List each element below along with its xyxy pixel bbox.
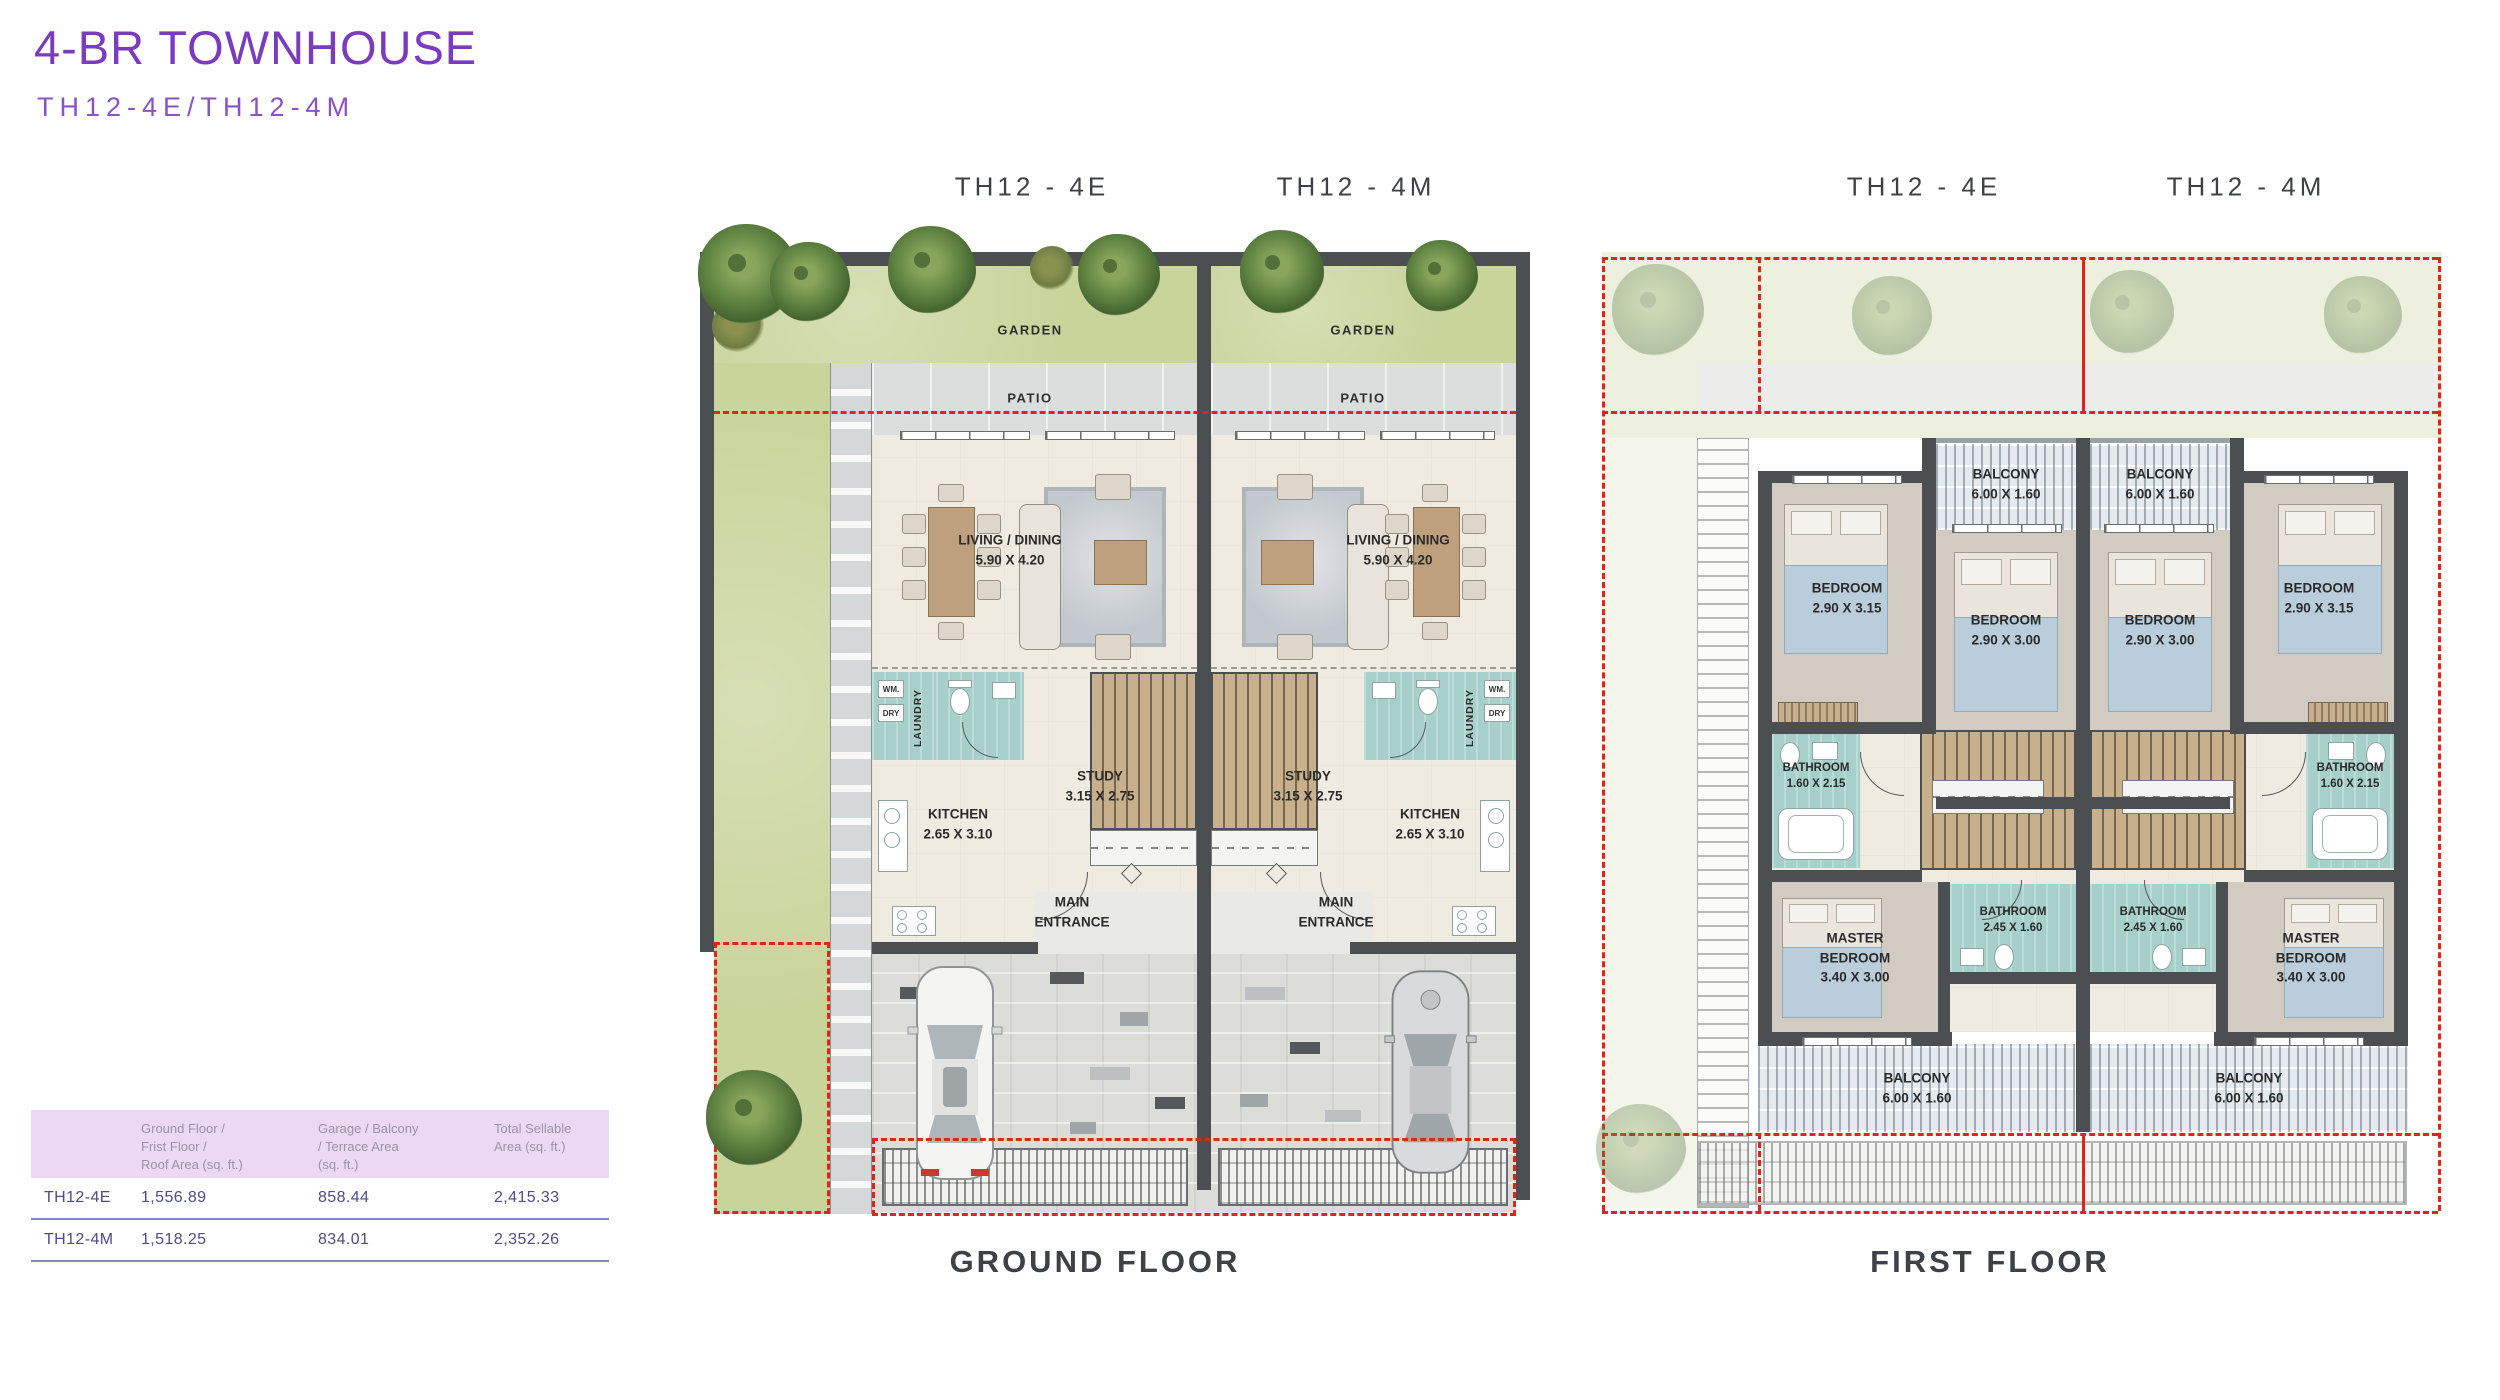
burner: [897, 923, 907, 933]
sink: [2328, 742, 2354, 760]
red-boundary-box-bottom: [872, 1138, 1516, 1216]
armchair: [1095, 634, 1131, 660]
dining-chair: [1422, 484, 1448, 502]
armchair: [1277, 634, 1313, 660]
page-subtitle: TH12-4E/TH12-4M: [37, 92, 355, 123]
red-line: [1758, 257, 1761, 411]
bush: [1030, 246, 1074, 290]
ghost-tree: [2324, 276, 2402, 354]
ghost-tree: [1612, 264, 1704, 356]
balcony-bottom-label-right: BALCONY 6.00 X 1.60: [2214, 1068, 2283, 1107]
toilet-tank: [948, 680, 972, 688]
ground-unit-label-4e: TH12 - 4E: [955, 172, 1110, 203]
paver-tile: [1120, 1012, 1148, 1026]
patio-label-left: PATIO: [1007, 391, 1052, 406]
dining-chair: [1385, 580, 1409, 600]
first-unit-label-4e: TH12 - 4E: [1847, 172, 2002, 203]
tree: [888, 226, 976, 314]
toilet: [1418, 688, 1438, 715]
wall-right: [2394, 471, 2408, 1046]
kitchen-sink: [884, 832, 900, 848]
coffee-table: [1261, 540, 1314, 585]
sink: [992, 682, 1016, 699]
sofa: [1347, 504, 1389, 650]
tree: [1240, 230, 1324, 314]
master-label-left: MASTER BEDROOM 3.40 X 3.00: [1807, 929, 1903, 988]
wall-innerbed-right: [2090, 797, 2230, 809]
red-line: [1602, 1211, 2438, 1214]
sink: [1812, 742, 1838, 760]
wall-innerbath-left: [1950, 972, 2076, 984]
total-area-value: 2,415.33: [490, 1189, 609, 1207]
wall-master-left: [1938, 882, 1950, 1032]
red-line: [2438, 257, 2441, 1211]
paver-tile: [1245, 987, 1285, 1000]
wall-bed-bath-left: [1772, 722, 1922, 734]
burner: [1477, 923, 1487, 933]
bathtub: [1778, 808, 1854, 860]
side-walkway: [830, 363, 872, 1214]
burner: [1477, 910, 1487, 920]
burner: [917, 923, 927, 933]
wall-right: [1516, 252, 1530, 1200]
washing-machine: WM.: [1484, 680, 1510, 698]
kitchen-sink: [1488, 808, 1504, 824]
dining-chair: [902, 514, 926, 534]
stair-landing-right: [1211, 830, 1318, 866]
dining-chair: [1462, 514, 1486, 534]
window: [2264, 475, 2374, 484]
paver-tile: [1290, 1042, 1320, 1054]
bathtub: [2312, 808, 2388, 860]
paver-tile: [1325, 1110, 1361, 1122]
laundry-label-right: LAUNDRY: [1464, 689, 1476, 747]
red-divider: [2082, 257, 2085, 411]
ghost-terrace: [1697, 1141, 2407, 1205]
floor-area-value: 1,518.25: [137, 1231, 314, 1249]
floor-area-value: 1,556.89: [137, 1189, 314, 1207]
wall-bedroom-right: [2230, 438, 2244, 734]
patio-window: [900, 431, 1030, 440]
wall-innerbed-left: [1936, 797, 2076, 809]
dining-chair: [977, 580, 1001, 600]
kitchen-sink: [884, 808, 900, 824]
balcony-rail: [1936, 438, 2076, 443]
red-line: [1602, 257, 1605, 1211]
ghost-walkway: [1697, 438, 1749, 1208]
area-table: Ground Floor / Frist Floor / Roof Area (…: [31, 1110, 609, 1262]
bathroom-inner-label-right: BATHROOM 2.45 X 1.60: [2120, 904, 2187, 936]
living-label-left: LIVING / DINING 5.90 X 4.20: [958, 530, 1062, 569]
balcony-door: [1952, 524, 2062, 533]
wall-bottom-right-unit: [1350, 942, 1516, 954]
tree: [1078, 234, 1160, 316]
bathroom-outer-label-left: BATHROOM 1.60 X 2.15: [1783, 760, 1850, 792]
garden-label-left: GARDEN: [997, 323, 1062, 338]
sofa: [1019, 504, 1061, 650]
toilet: [1994, 944, 2014, 970]
ghost-tree: [1852, 276, 1932, 356]
total-area-value: 2,352.26: [490, 1231, 609, 1249]
balcony-top-label-right: BALCONY 6.00 X 1.60: [2125, 464, 2194, 503]
bedroom-outer-label-left: BEDROOM 2.90 X 3.15: [1812, 578, 1883, 617]
tree: [770, 242, 850, 322]
master-label-right: MASTER BEDROOM 3.40 X 3.00: [2263, 929, 2359, 988]
kitchen-label-left: KITCHEN 2.65 X 3.10: [923, 804, 992, 843]
wall-left: [1758, 471, 1772, 1046]
unit-name: TH12-4M: [31, 1231, 137, 1249]
dryer: DRY: [878, 704, 904, 722]
wall-bath-master-left: [1772, 870, 1922, 882]
unit-name: TH12-4E: [31, 1189, 137, 1207]
header-total-area: Total Sellable Area (sq. ft.): [490, 1110, 609, 1156]
tree: [1406, 240, 1478, 312]
toilet: [950, 688, 970, 715]
dryer: DRY: [1484, 704, 1510, 722]
balcony-top-label-left: BALCONY 6.00 X 1.60: [1971, 464, 2040, 503]
paver-tile: [1090, 1067, 1130, 1080]
patio-label-right: PATIO: [1340, 391, 1385, 406]
toilet-tank: [1416, 680, 1440, 688]
garage-area-value: 834.01: [314, 1231, 490, 1249]
dining-chair: [938, 622, 964, 640]
bathroom-inner-label-left: BATHROOM 2.45 X 1.60: [1980, 904, 2047, 936]
red-line: [1602, 257, 2438, 260]
wall-master-right: [2216, 882, 2228, 1032]
dining-chair: [1422, 622, 1448, 640]
balcony-rail: [2090, 438, 2230, 443]
dining-chair: [938, 484, 964, 502]
coffee-table: [1094, 540, 1147, 585]
first-floor-plan: BALCONY 6.00 X 1.60 BALCONY 6.00 X 1.60 …: [1602, 252, 2442, 1237]
armchair: [1095, 474, 1131, 500]
wall-left: [700, 252, 714, 952]
balcony-door: [1802, 1037, 1912, 1046]
burner: [1457, 923, 1467, 933]
header-garage-area: Garage / Balcony / Terrace Area (sq. ft.…: [314, 1110, 490, 1175]
washing-machine: WM.: [878, 680, 904, 698]
toilet: [2152, 944, 2172, 970]
paver-tile: [1050, 972, 1084, 984]
window: [1792, 475, 1902, 484]
patio-window: [1045, 431, 1175, 440]
floorplan-page: 4-BR TOWNHOUSE TH12-4E/TH12-4M TH12 - 4E…: [0, 0, 2500, 1400]
entrance-label-right: MAIN ENTRANCE: [1293, 892, 1379, 931]
balcony-door: [2254, 1037, 2364, 1046]
study-label-right: STUDY 3.15 X 2.75: [1273, 766, 1342, 805]
area-table-header: Ground Floor / Frist Floor / Roof Area (…: [31, 1110, 609, 1178]
ghost-patio: [1697, 364, 2440, 412]
bathroom-outer-label-right: BATHROOM 1.60 X 2.15: [2317, 760, 2384, 792]
wall-bottom-left-unit: [872, 942, 1038, 954]
kitchen-label-right: KITCHEN 2.65 X 3.10: [1395, 804, 1464, 843]
balcony-bottom-label-left: BALCONY 6.00 X 1.60: [1882, 1068, 1951, 1107]
header-empty-cell: [31, 1110, 137, 1120]
living-divider: [1211, 667, 1516, 669]
table-row-th12-4m: TH12-4M 1,518.25 834.01 2,352.26: [31, 1220, 609, 1262]
ghost-tree: [2090, 270, 2174, 354]
dining-chair: [1462, 580, 1486, 600]
laundry-label-left: LAUNDRY: [912, 689, 924, 747]
wall-innerbath-right: [2090, 972, 2216, 984]
wall-bath-master-right: [2244, 870, 2394, 882]
garden-label-right: GARDEN: [1330, 323, 1395, 338]
patio-window: [1380, 431, 1495, 440]
header-floor-area: Ground Floor / Frist Floor / Roof Area (…: [137, 1110, 314, 1175]
staircase-right: [1211, 672, 1318, 830]
balcony-door: [2104, 524, 2214, 533]
living-label-right: LIVING / DINING 5.90 X 4.20: [1346, 530, 1450, 569]
study-label-left: STUDY 3.15 X 2.75: [1065, 766, 1134, 805]
ground-unit-label-4m: TH12 - 4M: [1277, 172, 1436, 203]
dining-chair: [1462, 547, 1486, 567]
ghost-side-garden: [1602, 438, 1697, 1208]
stair-landing-left: [1090, 830, 1197, 866]
wall-party: [2076, 438, 2090, 1132]
wall-bedroom-left: [1922, 438, 1936, 734]
sink: [1960, 948, 1984, 966]
red-line: [1758, 1133, 1761, 1211]
paver-tile: [1240, 1094, 1268, 1107]
red-divider: [2082, 1133, 2085, 1211]
armchair: [1277, 474, 1313, 500]
red-boundary-line: [714, 411, 1516, 414]
burner: [897, 910, 907, 920]
kitchen-sink: [1488, 832, 1504, 848]
garage-area-value: 858.44: [314, 1189, 490, 1207]
red-line: [1602, 411, 2438, 414]
wall-party: [1197, 252, 1211, 1190]
dining-chair: [902, 547, 926, 567]
wall-bed-bath-right: [2244, 722, 2394, 734]
dining-chair: [902, 580, 926, 600]
paver-tile: [1155, 1097, 1185, 1109]
tree: [706, 1070, 802, 1166]
red-line: [1602, 1133, 2438, 1136]
burner: [1457, 910, 1467, 920]
first-floor-caption: FIRST FLOOR: [1870, 1244, 2110, 1280]
living-divider: [872, 667, 1197, 669]
first-unit-label-4m: TH12 - 4M: [2167, 172, 2326, 203]
page-title: 4-BR TOWNHOUSE: [34, 20, 477, 75]
bedroom-inner-label-left: BEDROOM 2.90 X 3.00: [1971, 610, 2042, 649]
sink: [1372, 682, 1396, 699]
ground-floor-caption: GROUND FLOOR: [950, 1244, 1241, 1280]
ghost-tree: [1596, 1104, 1686, 1194]
paver-tile: [1070, 1122, 1096, 1134]
burner: [917, 910, 927, 920]
bedroom-inner-label-right: BEDROOM 2.90 X 3.00: [2125, 610, 2196, 649]
ground-floor-plan: WM. DRY WM. DRY LAUNDRY LAUNDRY: [700, 252, 1530, 1237]
table-row-th12-4e: TH12-4E 1,556.89 858.44 2,415.33: [31, 1178, 609, 1220]
patio-window: [1235, 431, 1365, 440]
staircase-left: [1090, 672, 1197, 830]
entrance-label-left: MAIN ENTRANCE: [1029, 892, 1115, 931]
sink: [2182, 948, 2206, 966]
bedroom-outer-label-right: BEDROOM 2.90 X 3.15: [2284, 578, 2355, 617]
